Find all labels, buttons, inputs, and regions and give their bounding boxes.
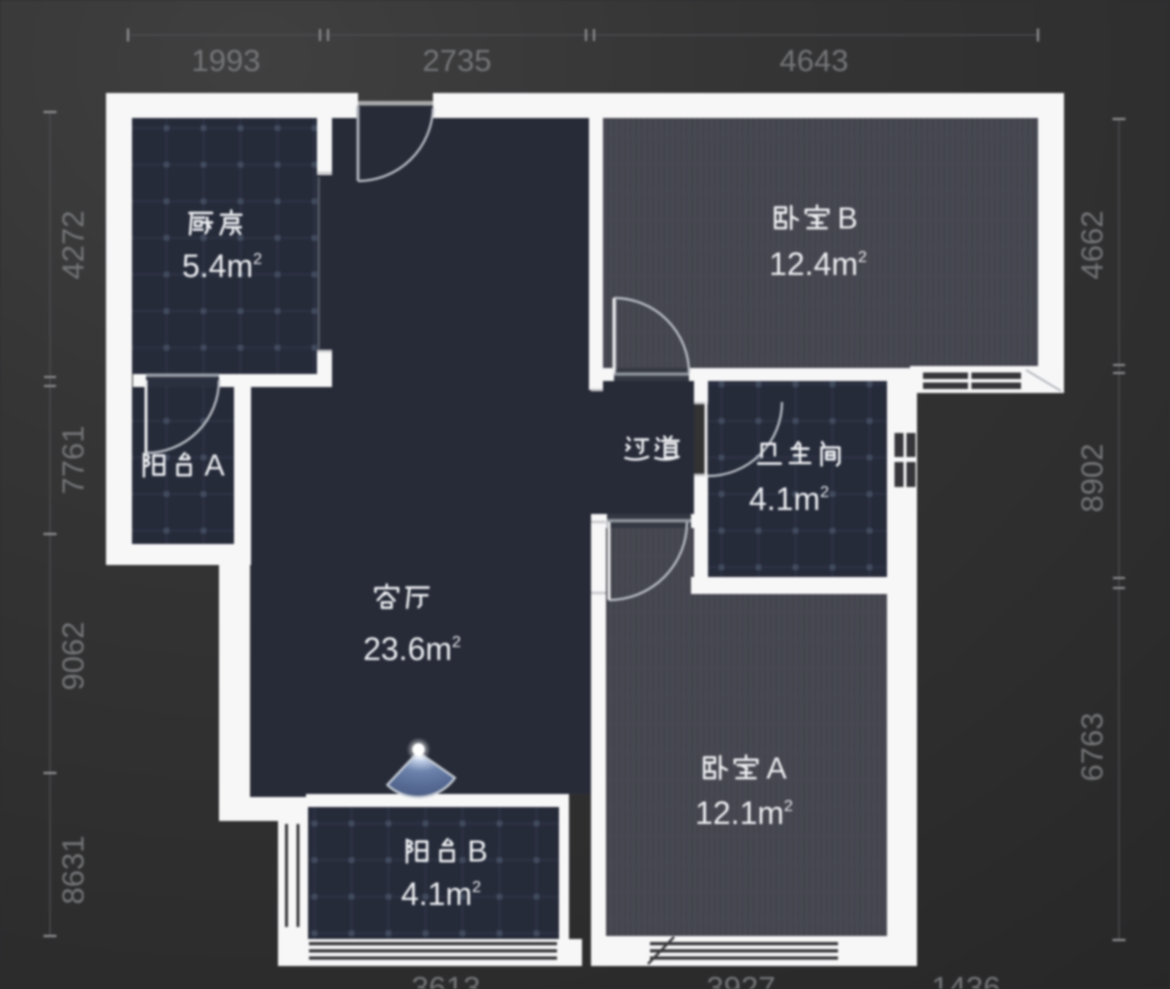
svg-text:3927: 3927 — [707, 970, 776, 989]
svg-text:8631: 8631 — [56, 836, 91, 905]
svg-text:4272: 4272 — [56, 211, 91, 280]
svg-text:4.1m2: 4.1m2 — [749, 481, 829, 517]
svg-text:7761: 7761 — [56, 426, 91, 495]
svg-text:1993: 1993 — [192, 43, 261, 78]
svg-text:9062: 9062 — [56, 622, 91, 691]
svg-text:12.4m2: 12.4m2 — [769, 246, 867, 282]
svg-text:4.1m2: 4.1m2 — [401, 876, 481, 912]
svg-text:A: A — [766, 751, 787, 785]
svg-text:4662: 4662 — [1075, 211, 1110, 280]
svg-text:23.6m2: 23.6m2 — [363, 631, 461, 667]
svg-text:8902: 8902 — [1075, 444, 1110, 513]
svg-text:4643: 4643 — [780, 43, 849, 78]
svg-text:1436: 1436 — [932, 970, 1001, 989]
svg-text:2735: 2735 — [423, 43, 492, 78]
svg-text:A: A — [204, 448, 225, 482]
svg-text:5.4m2: 5.4m2 — [182, 248, 262, 284]
svg-text:B: B — [467, 834, 487, 868]
svg-text:3613: 3613 — [412, 970, 481, 989]
svg-text:B: B — [837, 201, 857, 235]
svg-text:6763: 6763 — [1075, 713, 1110, 782]
svg-text:12.1m2: 12.1m2 — [695, 795, 793, 831]
